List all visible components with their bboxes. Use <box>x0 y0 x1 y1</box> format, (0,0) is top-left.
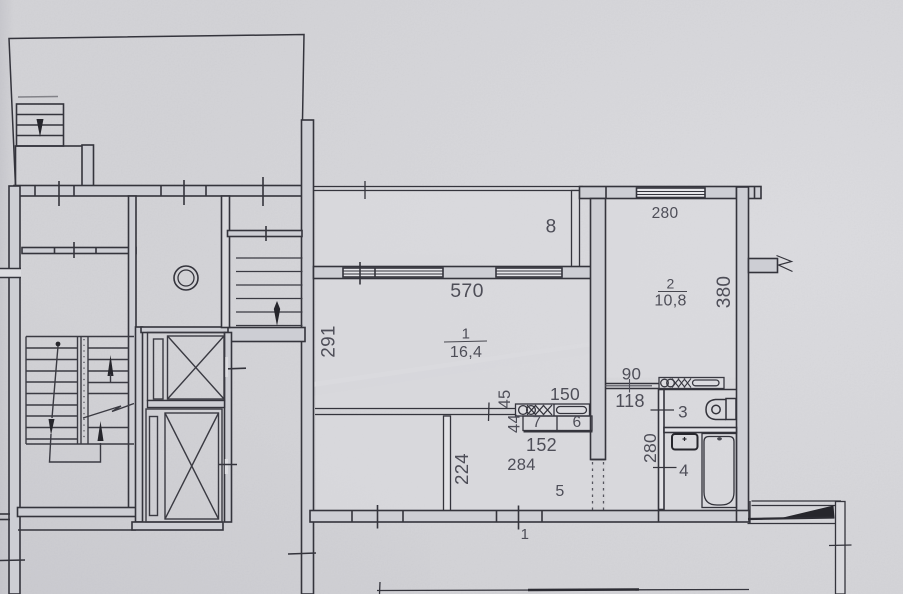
svg-text:380: 380 <box>714 276 735 309</box>
svg-text:152: 152 <box>526 435 557 455</box>
svg-text:280: 280 <box>652 205 679 222</box>
svg-text:118: 118 <box>615 391 645 411</box>
svg-text:224: 224 <box>451 453 472 485</box>
svg-text:4: 4 <box>679 461 689 480</box>
svg-text:1: 1 <box>521 526 530 543</box>
svg-text:6: 6 <box>573 414 582 431</box>
svg-text:1: 1 <box>462 326 471 343</box>
svg-text:570: 570 <box>450 280 483 302</box>
svg-text:44: 44 <box>506 414 524 433</box>
svg-text:16,4: 16,4 <box>450 344 482 361</box>
svg-text:291: 291 <box>319 325 340 358</box>
svg-text:8: 8 <box>546 217 557 238</box>
svg-text:90: 90 <box>622 365 642 384</box>
svg-text:2: 2 <box>666 276 674 292</box>
svg-text:3: 3 <box>678 403 688 422</box>
svg-text:10,8: 10,8 <box>654 293 686 310</box>
svg-text:45: 45 <box>496 390 514 409</box>
svg-text:5: 5 <box>555 483 564 500</box>
svg-text:7: 7 <box>533 414 542 431</box>
svg-text:284: 284 <box>507 456 535 474</box>
svg-text:150: 150 <box>550 384 580 404</box>
svg-text:280: 280 <box>640 433 660 463</box>
